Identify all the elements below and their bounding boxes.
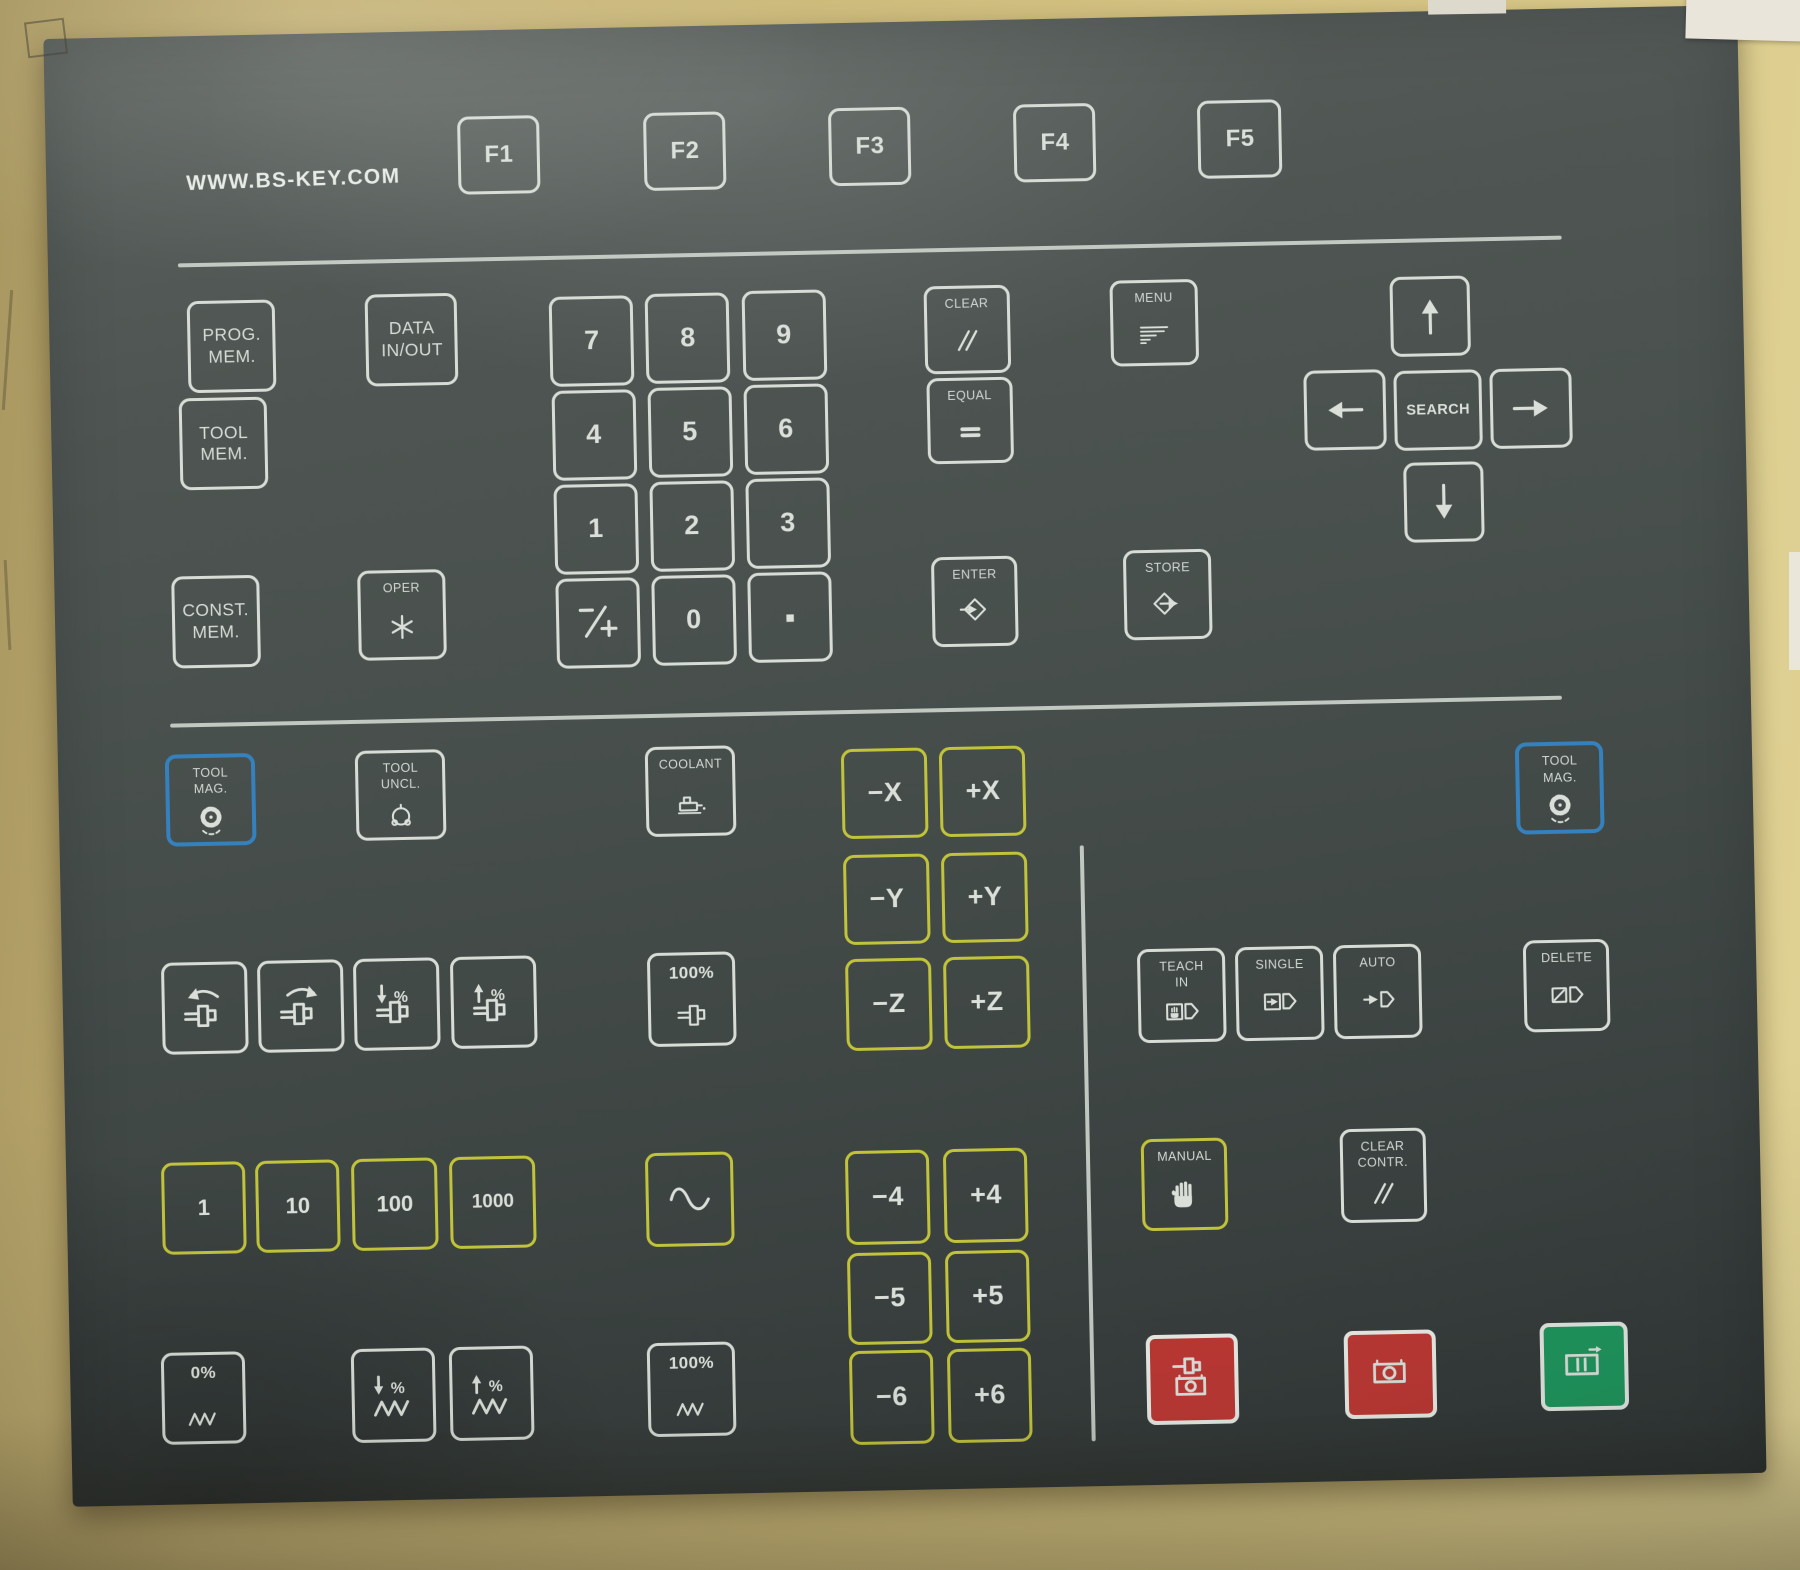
key-label: −4 [872, 1181, 904, 1213]
key-caption: AUTO [1359, 954, 1395, 971]
key-caption: CLEARCONTR. [1357, 1138, 1408, 1172]
key-minus-z[interactable]: −Z [845, 957, 933, 1051]
key-caption: CLEAR [945, 295, 989, 312]
key-enter[interactable]: ENTER [931, 555, 1019, 647]
key-caption-line: 100% [669, 1352, 715, 1375]
key-caption-line: MAG. [1543, 769, 1577, 786]
key-menu[interactable]: MENU [1109, 279, 1199, 367]
key-label: −6 [876, 1381, 908, 1413]
key-label: F5 [1225, 125, 1255, 154]
zigzag-icon [182, 1384, 227, 1442]
key-d3[interactable]: 3 [745, 477, 831, 569]
teach-in-icon [1161, 990, 1204, 1039]
key-caption: CONST.MEM. [182, 599, 249, 644]
key-label: 7 [584, 325, 600, 356]
key-oper[interactable]: OPER [357, 569, 447, 661]
key-label: 10 [285, 1193, 310, 1219]
key-caption-line: EQUAL [947, 387, 992, 404]
key-spindle-pct-down[interactable]: % [353, 957, 441, 1051]
key-caption-line: MAG. [194, 781, 228, 798]
key-caption-line: CONTR. [1358, 1154, 1409, 1171]
key-caption-line: SINGLE [1255, 956, 1304, 973]
asterisk-icon [381, 596, 424, 658]
coolant-icon [670, 772, 713, 834]
equals-icon [949, 404, 992, 462]
key-feed-pct-down[interactable]: % [351, 1347, 437, 1443]
key-label: +Z [970, 986, 1004, 1018]
key-plus-6[interactable]: +6 [947, 1347, 1033, 1443]
key-caption: 100% [669, 962, 715, 985]
key-caption-line: COOLANT [659, 755, 723, 773]
key-label: −5 [874, 1282, 906, 1314]
key-data-in-out[interactable]: DATAIN/OUT [365, 293, 459, 387]
pct-up-zigzag-icon: % [465, 1367, 518, 1420]
key-arrow-down[interactable] [1403, 461, 1485, 543]
key-caption: TOOLUNCL. [380, 760, 420, 793]
ccw-spindle-icon [178, 982, 231, 1035]
wheel-icon [190, 797, 233, 842]
key-caption-line: MEM. [208, 345, 256, 368]
key-d0[interactable]: 0 [651, 574, 737, 666]
key-teach-in[interactable]: TEACHIN [1137, 947, 1227, 1043]
menu-icon [1133, 306, 1176, 364]
key-arrow-right[interactable] [1489, 367, 1573, 449]
key-clear[interactable]: CLEAR [923, 285, 1011, 375]
key-feed-pct-up[interactable]: % [449, 1345, 535, 1441]
key-label: F1 [484, 141, 514, 170]
arrow-up-icon [1404, 289, 1457, 342]
key-tool-mag-right[interactable]: TOOLMAG. [1515, 741, 1605, 835]
key-plus-minus[interactable] [555, 577, 641, 669]
key-caption: MANUAL [1157, 1148, 1212, 1165]
key-caption-line: CLEAR [1360, 1138, 1404, 1155]
key-search[interactable]: SEARCH [1393, 369, 1483, 451]
key-prog-mem[interactable]: PROG.MEM. [187, 299, 277, 393]
key-caption-line: OPER [383, 580, 420, 597]
wheel-icon [1539, 785, 1582, 830]
key-spindle-cw[interactable] [257, 959, 345, 1053]
key-caption: TOOLMAG. [192, 765, 228, 798]
key-caption: TEACHIN [1159, 958, 1204, 991]
spindle-stop-icon [1166, 1353, 1219, 1406]
plusminus-icon [571, 596, 624, 649]
key-caption-line: MENU [1134, 290, 1173, 307]
key-label: SEARCH [1406, 401, 1470, 418]
key-manual[interactable]: MANUAL [1141, 1137, 1229, 1231]
key-caption-line: IN/OUT [381, 339, 443, 362]
key-caption-line: 0% [190, 1362, 216, 1385]
key-delete[interactable]: DELETE [1523, 939, 1611, 1033]
key-plus-x[interactable]: +X [939, 745, 1027, 837]
delete-icon [1546, 966, 1589, 1030]
key-inc-1[interactable]: 1 [161, 1161, 247, 1255]
key-d1[interactable]: 1 [553, 483, 639, 575]
key-inc-100[interactable]: 100 [351, 1157, 439, 1251]
key-label: 4 [586, 419, 602, 450]
key-caption-line: TEACH [1159, 958, 1204, 975]
key-caption-line: DELETE [1541, 950, 1592, 967]
key-d5[interactable]: 5 [647, 386, 733, 478]
key-label: 0 [686, 604, 702, 635]
key-caption-line: TOOL [382, 760, 418, 777]
feed-stop-icon [1364, 1348, 1417, 1401]
pencil-mark [24, 18, 68, 59]
key-feed-stop[interactable] [1343, 1329, 1437, 1419]
key-caption: ENTER [952, 566, 997, 583]
cw-spindle-icon [274, 980, 327, 1033]
key-wave[interactable] [645, 1151, 735, 1247]
key-label: 9 [776, 319, 792, 350]
key-caption: DELETE [1541, 950, 1592, 967]
key-caption-line: PROG. [202, 323, 261, 346]
key-d8[interactable]: 8 [645, 292, 731, 384]
photo-background: WWW.BS-KEY.COMF1F2F3F4F5PROG.MEM.DATAIN/… [0, 0, 1800, 1570]
key-tool-uncl[interactable]: TOOLUNCL. [355, 749, 447, 841]
key-arrow-left[interactable] [1303, 369, 1387, 451]
sine-icon [663, 1173, 716, 1226]
key-label: 1 [197, 1195, 210, 1221]
pct-up-spindle-icon: % [467, 976, 520, 1029]
key-caption: TOOLMEM. [199, 422, 249, 467]
key-caption-line: MANUAL [1157, 1148, 1212, 1165]
key-label: 5 [682, 416, 698, 447]
key-spindle-feed-stop[interactable] [1145, 1333, 1239, 1425]
key-minus-x[interactable]: −X [841, 747, 929, 839]
key-d4[interactable]: 4 [551, 389, 637, 481]
key-coolant[interactable]: COOLANT [645, 745, 737, 837]
key-f4[interactable]: F4 [1013, 103, 1097, 183]
key-store[interactable]: STORE [1123, 549, 1213, 641]
key-label: +5 [972, 1280, 1004, 1312]
slashes-icon [946, 312, 989, 372]
key-label: 1000 [472, 1191, 515, 1214]
key-arrow-up[interactable] [1389, 275, 1471, 357]
key-feed-100[interactable]: 100% [647, 1341, 737, 1437]
enter-icon [954, 582, 997, 644]
key-caption: SINGLE [1255, 956, 1304, 973]
svg-text:%: % [391, 1380, 405, 1397]
key-label: −X [867, 777, 902, 809]
key-caption: COOLANT [659, 755, 723, 773]
key-caption: EQUAL [947, 387, 992, 404]
key-caption: DATAIN/OUT [381, 317, 444, 362]
key-spindle-ccw[interactable] [161, 961, 249, 1055]
key-spindle-100[interactable]: 100% [647, 951, 737, 1047]
key-label: F2 [670, 137, 700, 166]
key-minus-6[interactable]: −6 [849, 1349, 935, 1445]
key-plus-5[interactable]: +5 [945, 1249, 1031, 1343]
key-minus-5[interactable]: −5 [847, 1251, 933, 1345]
key-plus-z[interactable]: +Z [943, 955, 1031, 1049]
key-feed-start[interactable] [1539, 1321, 1629, 1411]
key-single[interactable]: SINGLE [1235, 945, 1325, 1041]
zigzag-icon [670, 1374, 715, 1434]
key-d6[interactable]: 6 [743, 383, 829, 475]
key-label: +6 [974, 1379, 1006, 1411]
arrow-down-icon [1418, 475, 1471, 528]
key-inc-1000[interactable]: 1000 [449, 1155, 537, 1249]
key-label: 6 [778, 413, 794, 444]
key-caption-line: STORE [1145, 560, 1190, 577]
arrow-right-icon [1505, 381, 1558, 434]
store-icon [1147, 576, 1190, 638]
key-caption-line: TOOL [192, 765, 228, 782]
key-caption-line: DATA [389, 318, 435, 341]
key-caption-line: 100% [669, 962, 715, 985]
single-icon [1259, 972, 1302, 1038]
svg-text:%: % [489, 1378, 503, 1395]
key-tool-mag-left[interactable]: TOOLMAG. [165, 753, 257, 847]
key-plus-4[interactable]: +4 [943, 1147, 1029, 1243]
key-label: −Z [872, 988, 906, 1020]
key-caption-line: TOOL [1542, 753, 1578, 770]
key-f1[interactable]: F1 [457, 115, 541, 195]
key-d9[interactable]: 9 [741, 289, 827, 381]
key-tool-mem[interactable]: TOOLMEM. [179, 397, 269, 491]
key-label: 8 [680, 322, 696, 353]
key-caption: 100% [669, 1352, 715, 1375]
paper-scrap [1685, 0, 1800, 42]
pct-down-zigzag-icon: % [367, 1369, 420, 1422]
key-caption: STORE [1145, 560, 1190, 577]
key-caption-line: MEM. [192, 621, 240, 644]
auto-icon [1357, 970, 1400, 1036]
key-plus-y[interactable]: +Y [941, 851, 1029, 943]
key-decimal[interactable] [747, 571, 833, 663]
key-label: +X [965, 775, 1000, 807]
key-equal[interactable]: EQUAL [926, 377, 1014, 465]
key-caption: PROG.MEM. [202, 323, 261, 368]
collet-icon [380, 792, 423, 837]
key-label: 3 [780, 507, 796, 538]
key-label: F4 [1040, 129, 1070, 158]
hand-icon [1164, 1164, 1207, 1228]
key-d7[interactable]: 7 [549, 295, 635, 387]
control-panel: WWW.BS-KEY.COMF1F2F3F4F5PROG.MEM.DATAIN/… [0, 0, 1800, 1570]
key-caption: 0% [190, 1362, 216, 1385]
key-caption-line: MEM. [200, 443, 248, 466]
key-caption-line: CONST. [182, 599, 249, 622]
key-minus-y[interactable]: −Y [843, 853, 931, 945]
key-label: +Y [967, 881, 1002, 913]
key-label: −Y [869, 883, 904, 915]
dot-icon [763, 590, 816, 643]
key-caption-line: TOOL [199, 422, 248, 445]
key-f5[interactable]: F5 [1197, 99, 1283, 179]
key-caption-line: CLEAR [945, 295, 989, 312]
key-feed-0[interactable]: 0% [161, 1351, 247, 1445]
slashes-icon [1362, 1170, 1405, 1219]
key-inc-10[interactable]: 10 [255, 1159, 341, 1253]
paper-tab [1428, 0, 1506, 15]
key-label: F3 [855, 133, 885, 162]
spindle-icon [670, 984, 715, 1044]
key-caption: OPER [383, 580, 420, 597]
arrow-left-icon [1319, 383, 1372, 436]
key-spindle-pct-up[interactable]: % [450, 955, 538, 1049]
key-auto[interactable]: AUTO [1333, 943, 1423, 1039]
key-caption-line: IN [1175, 974, 1189, 991]
pct-down-spindle-icon: % [370, 978, 423, 1031]
key-caption-line: UNCL. [381, 776, 421, 793]
key-f2[interactable]: F2 [643, 111, 727, 191]
key-clear-contr[interactable]: CLEARCONTR. [1339, 1127, 1427, 1223]
key-label: 1 [588, 513, 604, 544]
key-d2[interactable]: 2 [649, 480, 735, 572]
key-caption-line: ENTER [952, 566, 997, 583]
key-caption-line: AUTO [1359, 954, 1395, 971]
key-label: 2 [684, 510, 700, 541]
key-f3[interactable]: F3 [828, 107, 912, 187]
paper-edge [1789, 552, 1800, 670]
key-label: +4 [970, 1179, 1002, 1211]
key-caption: MENU [1134, 290, 1173, 307]
key-minus-4[interactable]: −4 [845, 1149, 931, 1245]
feed-start-icon [1558, 1340, 1611, 1393]
key-caption: TOOLMAG. [1542, 753, 1578, 786]
key-const-mem[interactable]: CONST.MEM. [171, 575, 261, 669]
key-label: 100 [376, 1191, 413, 1218]
